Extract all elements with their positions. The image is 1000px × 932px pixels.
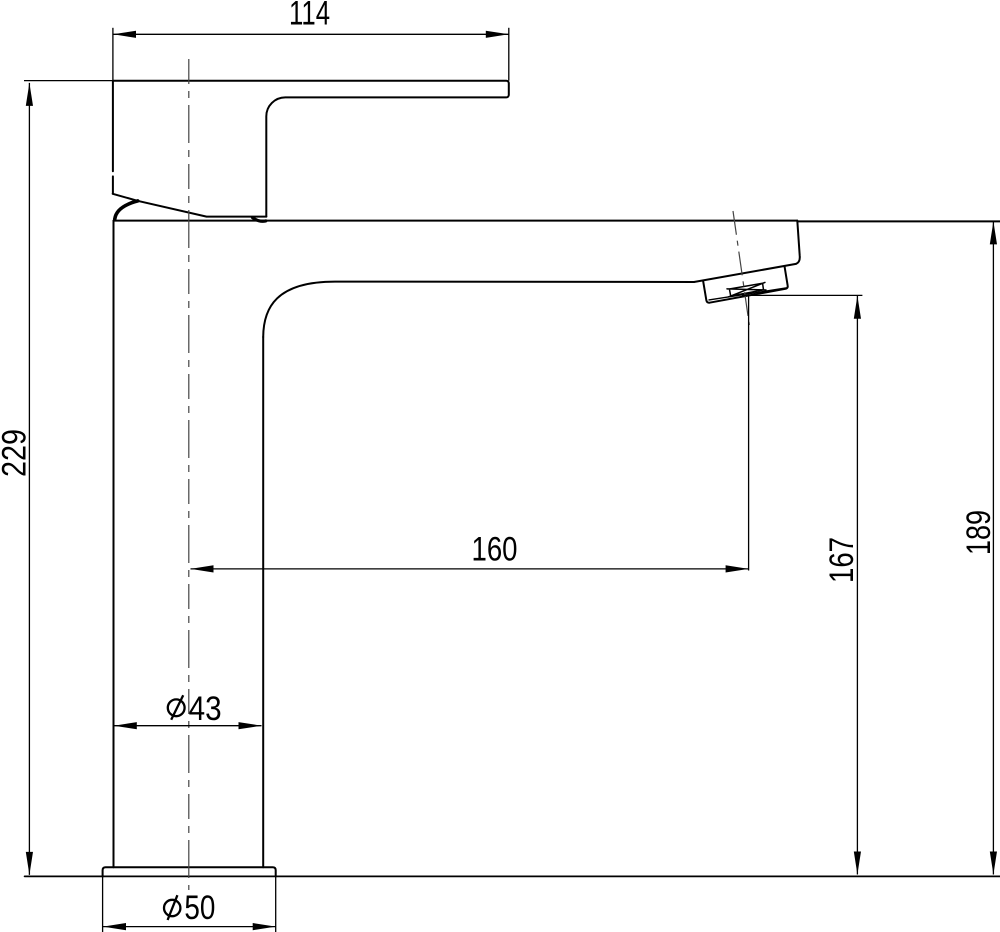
svg-text:114: 114 [289, 0, 330, 33]
svg-text:43: 43 [189, 690, 222, 728]
svg-text:229: 229 [0, 429, 34, 477]
svg-text:167: 167 [823, 537, 861, 583]
svg-text:189: 189 [960, 510, 998, 555]
svg-text:50: 50 [184, 889, 215, 927]
svg-text:160: 160 [472, 531, 518, 569]
